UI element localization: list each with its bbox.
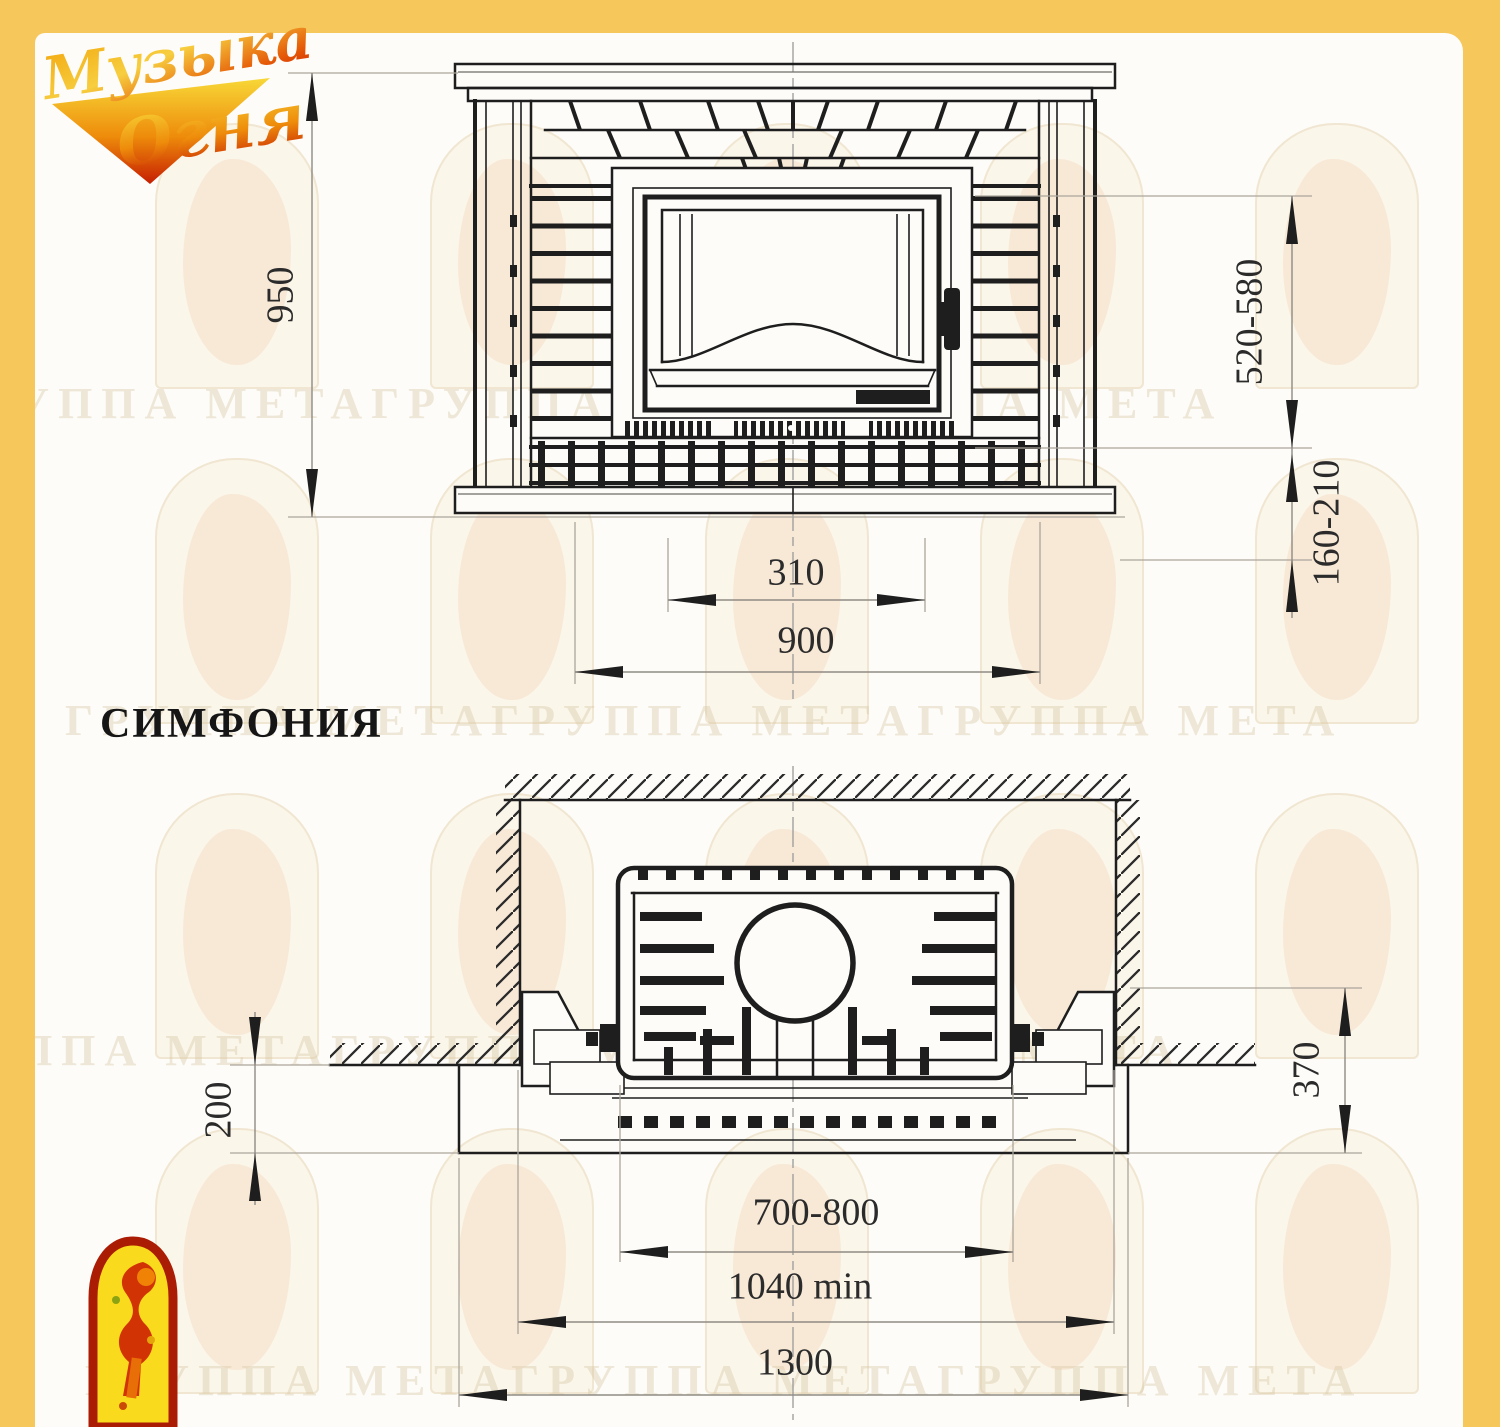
product-name: СИМФОНИЯ [100,700,383,748]
hearth-lattice [531,441,1039,486]
dim-base-width-label: 1300 [757,1342,833,1384]
hearth-edge-ticks [618,1116,1002,1128]
front-elevation-view [455,42,1115,702]
dim-floor-depth-label: 200 [198,1082,240,1139]
flame-emblem [82,1236,184,1427]
dim-niche-width-label: 1040 min [728,1266,873,1308]
base-plinth [455,487,1115,513]
dim-insert-width-label: 700-800 [753,1192,880,1234]
brand-logo: Музыка Огня [30,4,340,199]
dim-height-label: 950 [260,267,302,324]
page: { "page": { "frame_color": "#F6C75A", "s… [0,0,1500,1427]
dim-grille-width-label: 310 [768,552,825,594]
flue-outlet-circle [737,905,853,1021]
mantel-shelf [455,64,1115,101]
dim-body-width-label: 900 [778,620,835,662]
firebox [612,168,972,437]
dim-opening-height-label: 520-580 [1229,259,1271,386]
dim-hearth-height-label: 160-210 [1306,460,1348,587]
ash-drawer [856,390,930,404]
firebox-insert-plan [586,868,1044,1078]
dim-front-offset-label: 370 [1286,1042,1328,1099]
pilaster-left [475,101,531,487]
pilaster-right [1039,101,1095,487]
